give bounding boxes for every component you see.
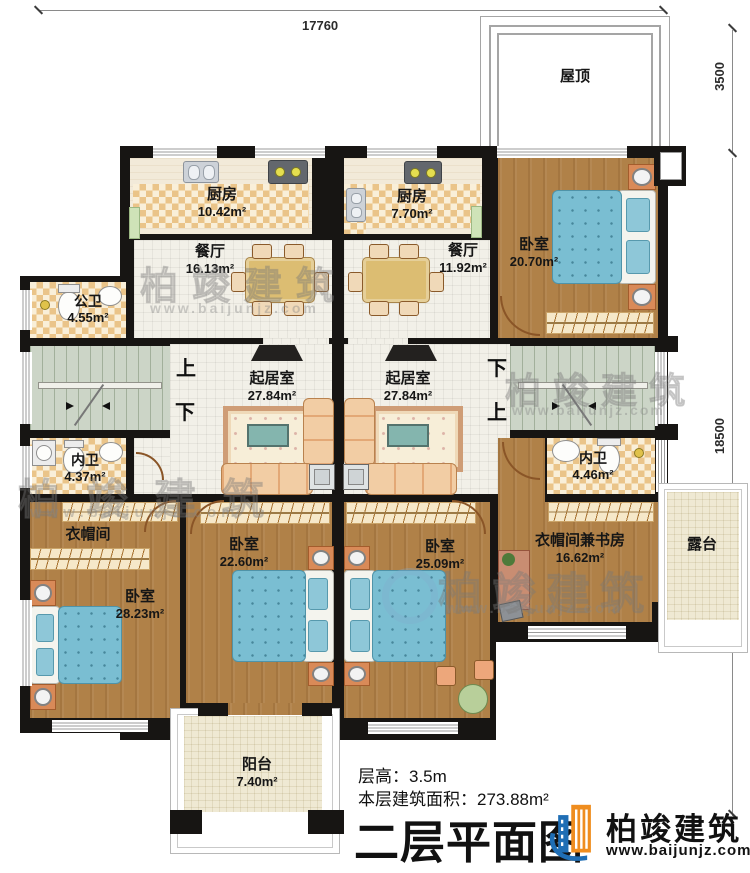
window [528, 626, 626, 639]
side-table [343, 464, 369, 490]
brand-logo [546, 800, 604, 862]
pillow [350, 620, 370, 652]
brand-logo-icon [546, 800, 604, 862]
tv-icon [385, 345, 437, 361]
dining-chair [399, 244, 419, 259]
wardrobe [30, 548, 150, 570]
kitchen-sink-icon [183, 161, 219, 183]
roof-outline-inner [497, 33, 653, 148]
dimension-line-top [38, 10, 664, 11]
pillow [626, 198, 650, 232]
window [153, 146, 217, 158]
sink-basin [188, 165, 200, 180]
window [255, 146, 325, 158]
dimension-right-lower-value: 18500 [712, 418, 727, 454]
room-label-roof: 屋顶 [560, 68, 590, 86]
balcony-door-post [302, 703, 332, 716]
stove-icon [268, 160, 308, 184]
room-label-bath-right: 内卫4.46m² [572, 450, 613, 482]
exterior-cutout [496, 642, 672, 742]
room-label-bedroom-left: 卧室28.23m² [116, 588, 164, 622]
brand-website: www.baijunjz.com [606, 842, 750, 859]
room-label-balcony: 阳台7.40m² [236, 756, 277, 790]
wardrobe [548, 502, 654, 522]
room-label-dining-right: 餐厅11.92m² [439, 242, 487, 276]
chair [436, 666, 456, 686]
watermark-site: www.baijunjz.com [30, 504, 239, 521]
bed [232, 570, 306, 662]
balcony-post [308, 810, 344, 834]
sofa [344, 398, 375, 466]
wall-stub [658, 424, 678, 440]
room-label-terrace: 露台 [687, 536, 717, 554]
room-label-cloakroom: 衣帽间 [65, 526, 110, 544]
dining-chair [369, 301, 389, 316]
dining-chair [348, 272, 363, 292]
kitchen-mat [129, 207, 140, 239]
wardrobe [546, 312, 654, 334]
stairs-down-label: 下 [487, 352, 507, 381]
dining-chair [399, 301, 419, 316]
room-label-bedroom-top-right: 卧室20.70m² [510, 236, 558, 270]
lamp-icon [40, 300, 50, 310]
watermark-site: www.baijunjz.com [150, 300, 319, 316]
stairs-up-label: 上 [176, 352, 196, 381]
pillow [36, 614, 54, 642]
window [20, 290, 32, 330]
room-label-living-right: 起居室27.84m² [384, 370, 432, 404]
dimension-line-right-upper [732, 30, 733, 154]
sink-basin [351, 207, 362, 218]
window [367, 146, 437, 158]
nightstand [344, 546, 370, 570]
door-opening [263, 338, 329, 344]
balcony-door-post [198, 703, 228, 716]
nightstand [308, 662, 334, 686]
dimension-right-upper-value: 3500 [712, 62, 727, 91]
wall-stub [658, 336, 678, 352]
sofa [303, 398, 334, 466]
window [20, 600, 32, 686]
nightstand [628, 164, 656, 190]
washer-drum [36, 445, 52, 461]
nightstand [30, 580, 56, 606]
lamp-icon [634, 448, 644, 458]
room-label-living-left: 起居室27.84m² [248, 370, 296, 404]
floor-plan: 17760 3500 18500 屋顶 [0, 0, 750, 873]
burner [410, 168, 420, 178]
bed [552, 190, 622, 284]
pillow [308, 620, 328, 652]
kitchen-mat [471, 206, 482, 238]
nightstand [344, 662, 370, 686]
round-table [458, 684, 488, 714]
room-label-kitchen-left: 厨房10.42m² [198, 186, 246, 220]
pillow [36, 648, 54, 676]
stairs-down-label: 下 [175, 396, 195, 425]
side-table [309, 464, 335, 490]
nightstand [628, 284, 656, 310]
sink-basin [203, 165, 215, 180]
window [368, 722, 458, 734]
room-label-bath-public: 公卫4.55m² [67, 293, 108, 325]
pillow [308, 578, 328, 610]
watermark-logo [382, 568, 438, 624]
sink-basin [351, 193, 362, 204]
pillow [626, 240, 650, 274]
room-label-kitchen-right: 厨房7.70m² [391, 188, 432, 222]
window [497, 146, 627, 158]
room-label-bedroom-mid-left: 卧室22.60m² [220, 536, 268, 570]
stair-arrow [66, 402, 74, 410]
burner [291, 167, 301, 177]
dining-table [362, 257, 430, 303]
coffee-table [247, 424, 289, 447]
nightstand [308, 546, 334, 570]
window [20, 352, 32, 424]
pillow [350, 578, 370, 610]
terrace-floor [667, 492, 739, 620]
balcony-door-threshold [228, 703, 302, 715]
chimney-flue [660, 152, 682, 180]
dining-chair [369, 244, 389, 259]
bed [58, 606, 122, 684]
sofa [365, 463, 457, 495]
tv-icon [251, 345, 303, 361]
stove-icon [404, 161, 442, 184]
nightstand [30, 684, 56, 710]
watermark-site: www.baijunjz.com [446, 600, 623, 617]
floor-height-text: 层高：3.5m [358, 762, 447, 787]
stair-arrow [102, 402, 110, 410]
burner [426, 168, 436, 178]
stairs-up-label: 上 [487, 396, 507, 425]
window [52, 720, 148, 732]
dimension-top-value: 17760 [302, 18, 338, 33]
watermark-site: www.baijunjz.com [512, 402, 665, 418]
kitchen-sink-icon [346, 188, 366, 222]
burner [275, 167, 285, 177]
coffee-table [387, 424, 429, 447]
door-opening [348, 338, 408, 344]
balcony-post [170, 810, 202, 834]
chair [474, 660, 494, 680]
